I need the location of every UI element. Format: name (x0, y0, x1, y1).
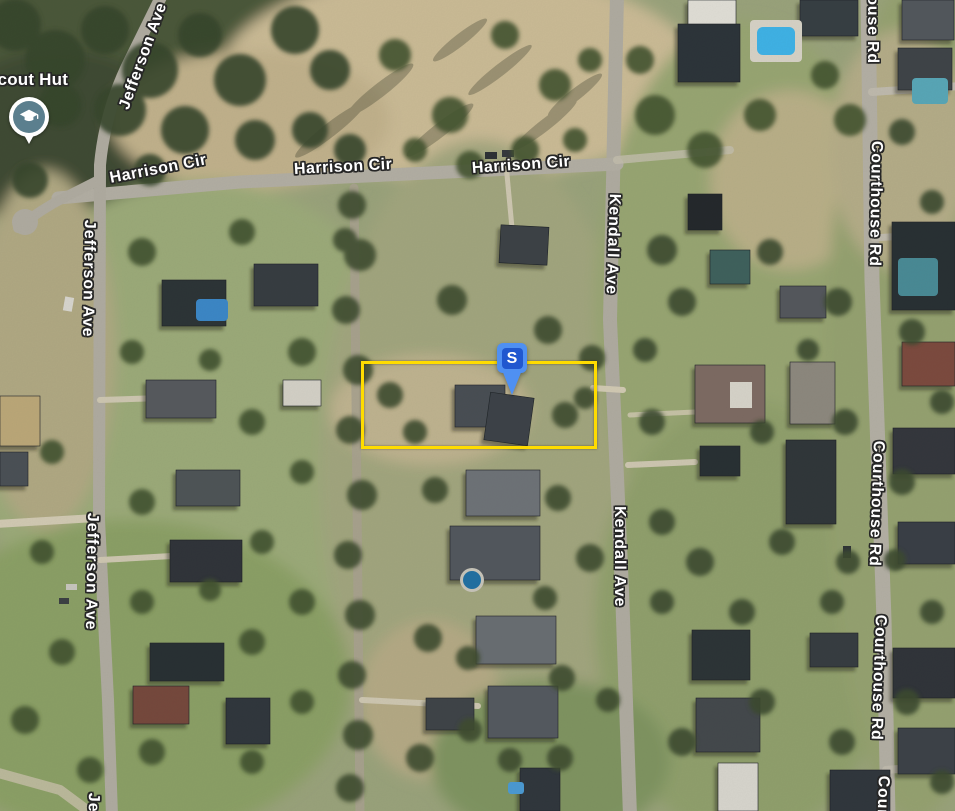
road-label-jefferson-ave: Jefferson Ave (82, 793, 102, 811)
marker-stem (502, 370, 522, 395)
road-label-jefferson-ave: Jefferson Ave (78, 220, 98, 338)
road-label-courthouse-rd: Courthouse Rd (870, 775, 892, 811)
marker-letter: S (502, 348, 523, 369)
parcel-boundary (361, 361, 597, 449)
property-marker[interactable]: S (497, 343, 527, 373)
marker-head: S (497, 343, 527, 373)
poi-pin-scout-hut[interactable] (9, 97, 49, 149)
road-label-courthouse-rd: Courthouse Rd (863, 0, 881, 64)
road-label-courthouse-rd: Courthouse Rd (865, 141, 885, 267)
education-icon (13, 101, 45, 133)
road-label-jefferson-ave: Jefferson Ave (81, 513, 101, 631)
road-label-kendall-ave: Kendall Ave (601, 193, 623, 295)
road-label-kendall-ave: Kendall Ave (610, 506, 628, 607)
poi-label-scout-hut: Scout Hut (0, 70, 68, 90)
satellite-map[interactable]: Harrison Cir Harrison Cir Harrison Cir J… (0, 0, 955, 811)
